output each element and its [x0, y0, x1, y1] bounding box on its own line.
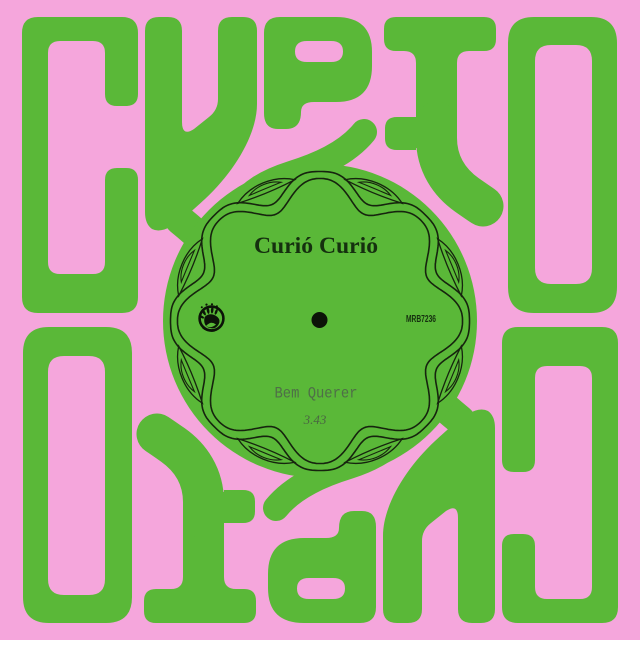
- svg-text:3.43: 3.43: [303, 412, 327, 427]
- svg-text:MRB7236: MRB7236: [406, 313, 436, 325]
- svg-text:Bem Querer: Bem Querer: [275, 385, 358, 403]
- svg-text:Curió Curió: Curió Curió: [254, 233, 378, 258]
